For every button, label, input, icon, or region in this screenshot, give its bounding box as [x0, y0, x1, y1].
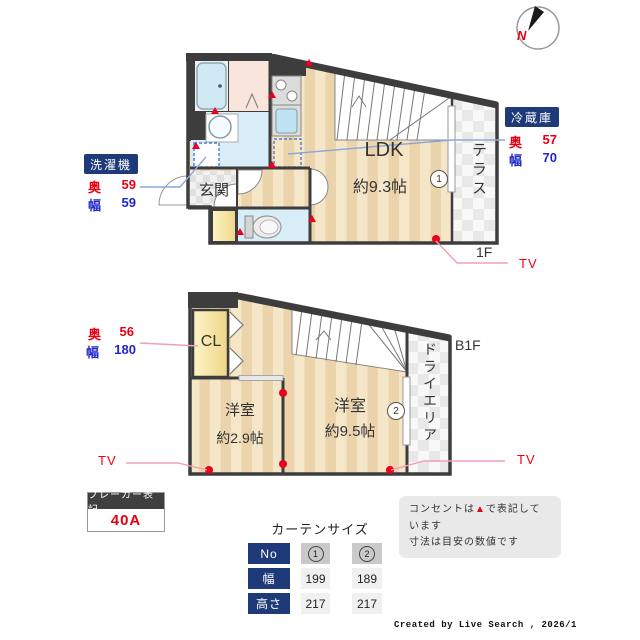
washer-badge: 洗濯機 [84, 154, 138, 174]
closet-width: 幅180 [86, 342, 136, 361]
room-label-terrace: テラス [468, 142, 489, 199]
cell-width-1: 199 [301, 568, 330, 589]
cell-no-1: 1 [301, 543, 330, 564]
tv-label-b1f-right: TV [517, 452, 536, 467]
credit-text: Created by Live Search , 2026/1 [394, 620, 577, 630]
fridge-width: 幅70 [509, 150, 557, 169]
fridge-depth: 奥57 [509, 132, 557, 151]
shoe-cabinet [212, 210, 236, 242]
room-size-small: 約2.9帖 [198, 428, 282, 448]
cell-height-2: 217 [352, 593, 382, 614]
tv-label-1f: TV [519, 256, 538, 271]
sink-icon [209, 116, 231, 138]
room-label-cl: CL [195, 333, 227, 351]
row-header-width: 幅 [248, 568, 290, 589]
note-line-1: コンセントは▲で表記しています [409, 502, 551, 535]
outlet-marker-glyph: ▲ [475, 504, 486, 515]
entry-door-icon [159, 176, 188, 205]
curtain-table-title: カーテンサイズ [250, 519, 390, 538]
room-label-small: 洋室 [202, 399, 278, 420]
stove-icon [272, 76, 301, 105]
fridge-badge: 冷蔵庫 [505, 107, 559, 127]
room-label-ldk: LDK [348, 139, 420, 162]
tv-label-b1f-left: TV [98, 453, 117, 468]
breaker-title: ブレーカー表記 [88, 493, 164, 509]
dressing-room [229, 59, 269, 111]
note-line-2: 寸法は目安の数値です [409, 535, 551, 552]
curtain-no-1-marker: 1 [430, 170, 448, 188]
cell-no-2: 2 [352, 543, 382, 564]
floor-label-b1f: B1F [455, 337, 481, 353]
washer-depth: 奥59 [88, 177, 136, 196]
compass-north-label: N [517, 28, 526, 43]
room-label-dry-area: ドライエリア [420, 342, 440, 444]
floorplan-page: LDK 約9.3帖 玄関 テラス 1 1F TV CL 洋室 約2.9帖 洋室 … [0, 0, 640, 640]
col-header-no: No [248, 543, 290, 564]
cell-width-2: 189 [352, 568, 382, 589]
toilet-icon [245, 216, 281, 238]
kitchen-sink-icon [272, 105, 301, 136]
cell-height-1: 217 [301, 593, 330, 614]
table-row: 幅 199 189 [248, 568, 382, 589]
floor-1f-plan [159, 53, 497, 243]
table-row: 高さ 217 217 [248, 593, 382, 614]
washer-width: 幅59 [88, 195, 136, 214]
curtain-table: No 1 2 幅 199 189 高さ 217 217 [248, 543, 382, 618]
table-row: No 1 2 [248, 543, 382, 564]
row-header-height: 高さ [248, 593, 290, 614]
breaker-box: ブレーカー表記 40A [87, 492, 165, 532]
room-size-ldk: 約9.3帖 [330, 173, 430, 197]
closet-depth: 奥56 [88, 324, 134, 343]
floor-label-1f: 1F [476, 244, 492, 260]
curtain-no-2-marker: 2 [387, 402, 405, 420]
legend-note: コンセントは▲で表記しています 寸法は目安の数値です [399, 496, 561, 558]
room-size-large: 約9.5帖 [306, 420, 394, 441]
window-1 [448, 106, 455, 192]
room-label-genkan: 玄関 [191, 179, 237, 200]
room-label-large: 洋室 [312, 392, 388, 416]
